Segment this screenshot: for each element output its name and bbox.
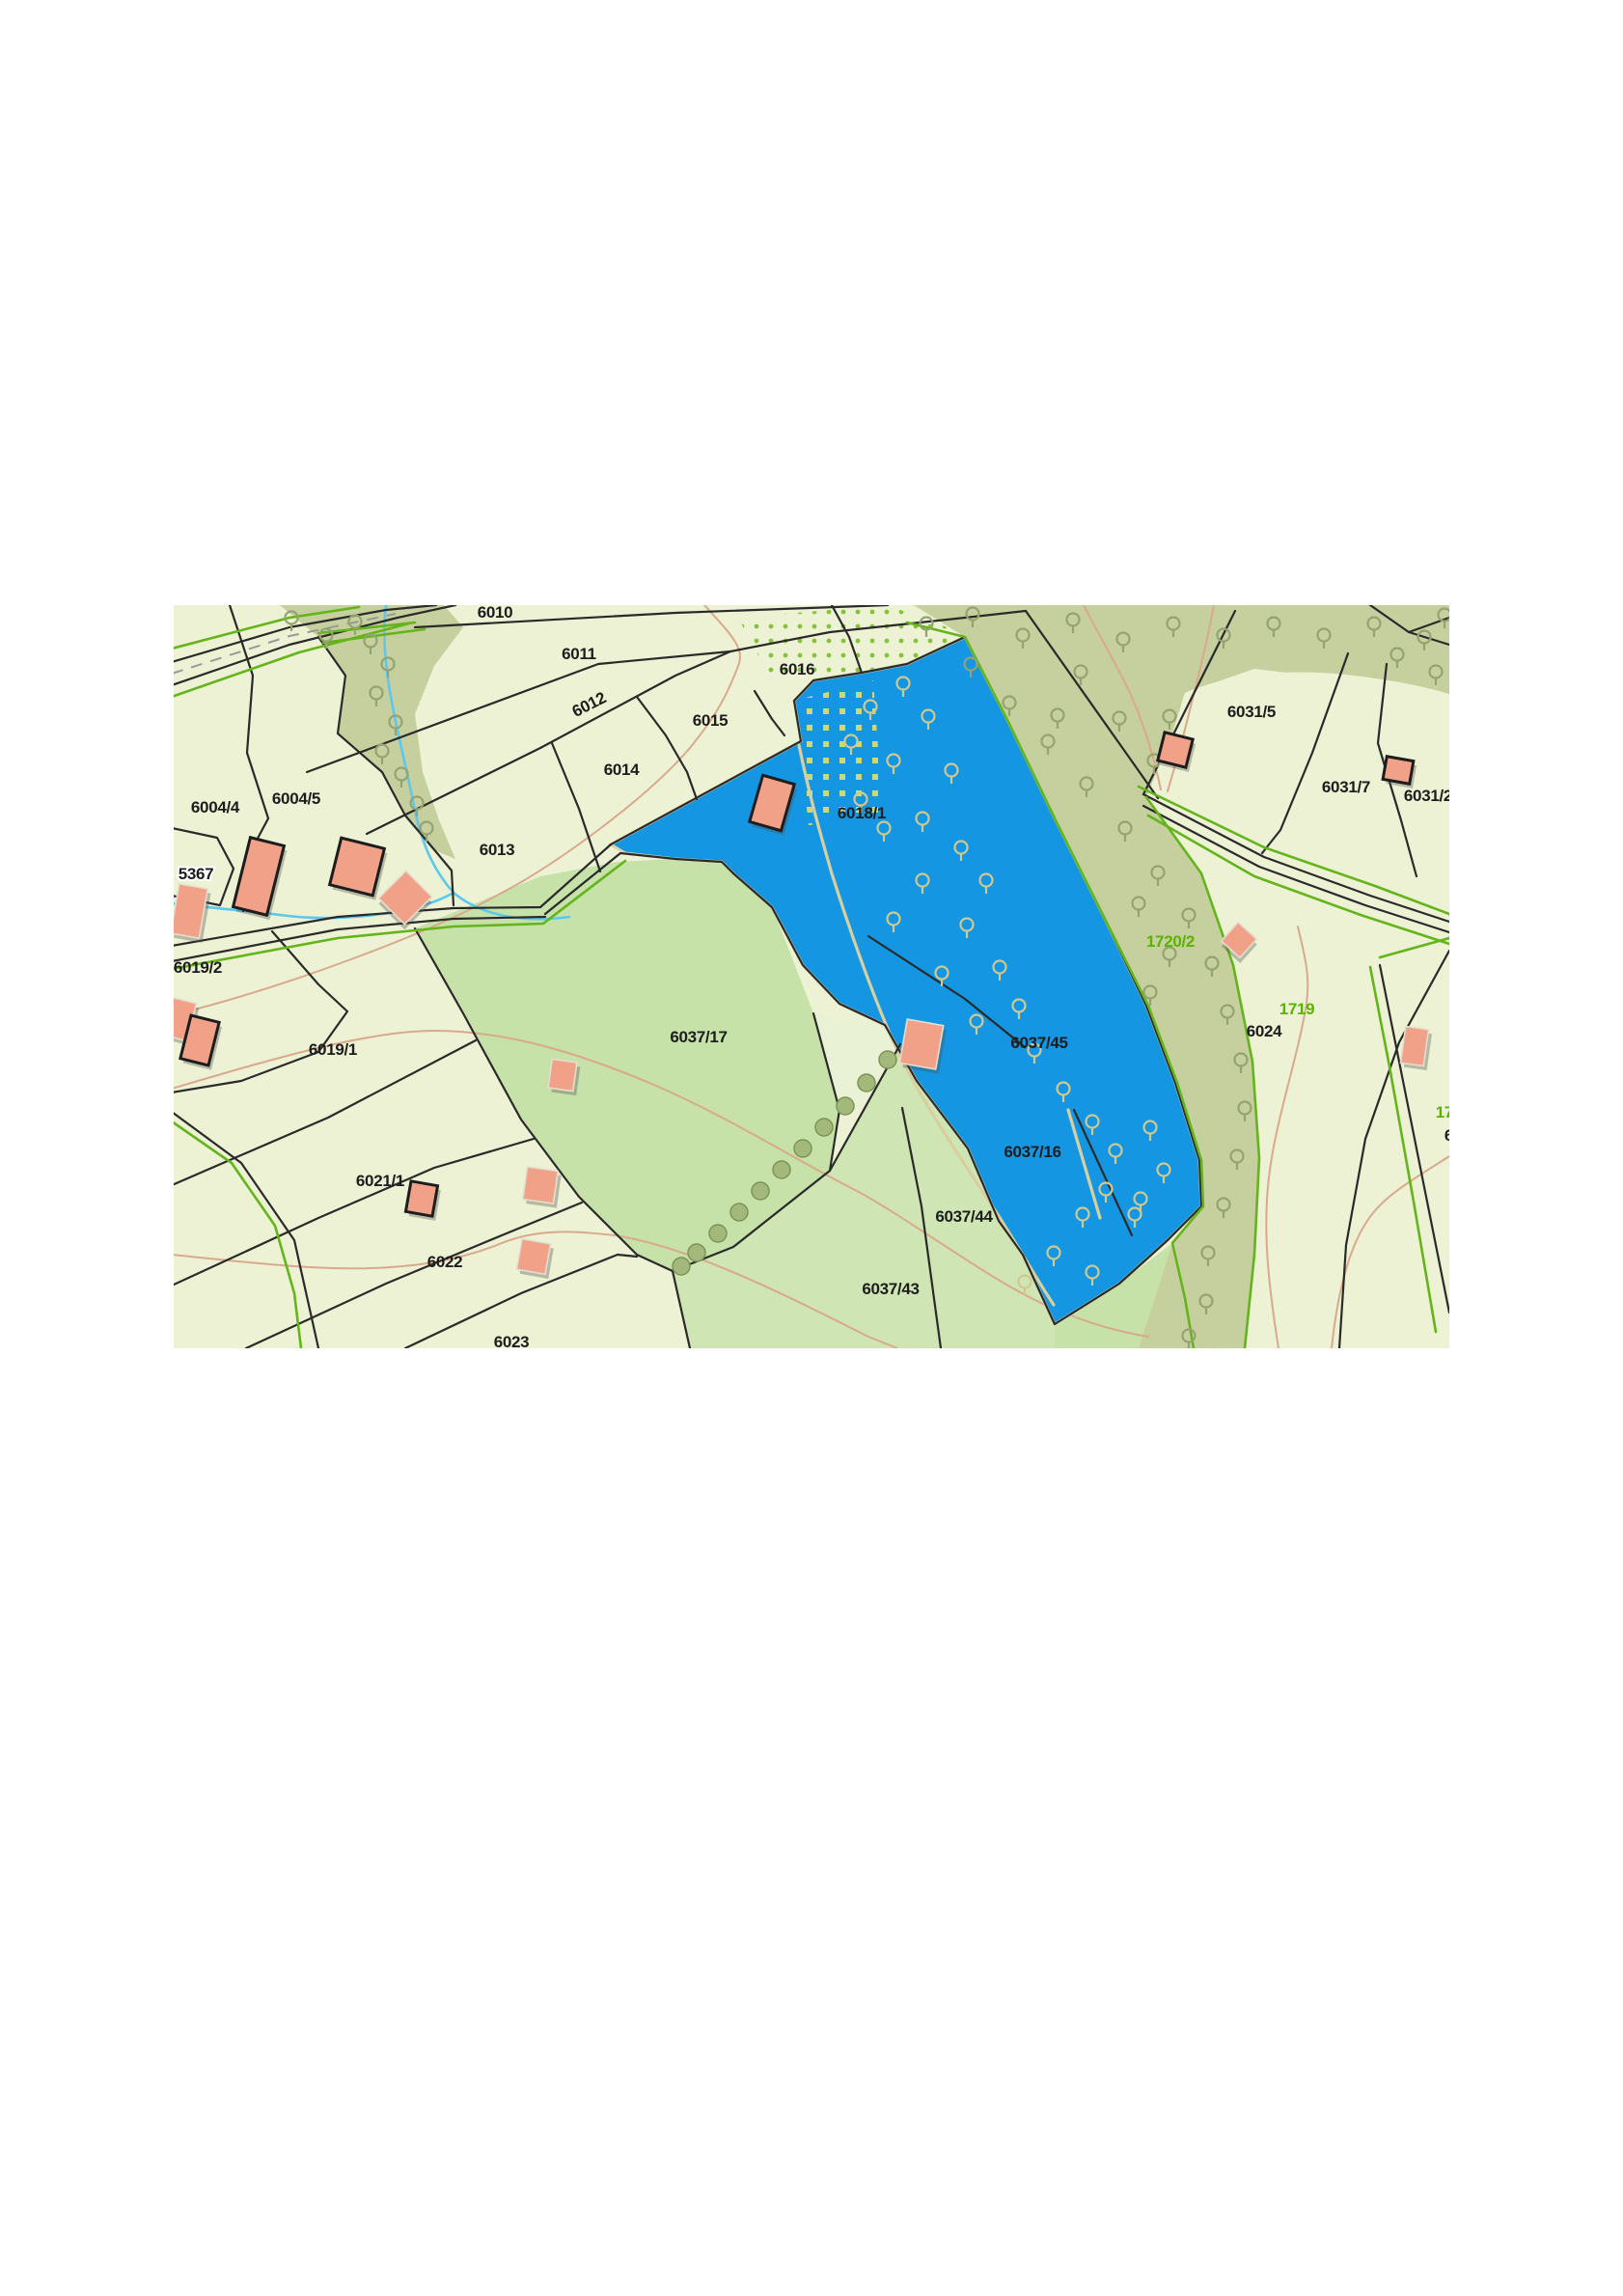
parcel-label: 6019/2 [174,958,222,977]
building [522,1167,562,1208]
building [405,1181,442,1221]
tree-row-icon [794,1140,811,1157]
parcel-label: 6019/1 [309,1040,357,1059]
building [547,1059,580,1095]
cadastral-map[interactable]: 60106011601260146015601660136004/46004/5… [0,0,1623,2296]
building [899,1019,948,1074]
parcel-label: 6037/45 [1010,1034,1067,1052]
tree-row-icon [773,1161,790,1178]
tree-row-icon [858,1074,875,1092]
parcel-label: 6031/2 [1404,787,1452,805]
tree-row-icon [752,1182,769,1200]
page-background: 60106011601260146015601660136004/46004/5… [0,0,1623,2296]
tree-row-icon [709,1225,727,1242]
tree-row-icon [879,1051,896,1068]
tree-row-icon [673,1258,690,1275]
parcel-label: 6013 [480,841,515,859]
parcel-label: 6014 [604,761,640,779]
building [1400,1027,1433,1070]
parcel-label: 6021/1 [356,1172,404,1190]
parcel-label: 6004/5 [272,789,320,808]
tree-row-icon [815,1119,833,1136]
parcel-label: 6031/7 [1322,778,1370,796]
parcel-label: 6037/16 [1004,1143,1060,1161]
parcel-label: 6037/43 [862,1280,919,1298]
parcel-label: 1720/2 [1146,932,1195,951]
tree-row-icon [688,1244,705,1261]
parcel-label: 6016 [780,660,815,678]
parcel-label: 6022 [427,1253,463,1271]
parcel-label: 6024 [1247,1022,1282,1040]
building [1382,757,1417,788]
parcel-label: 5367 [179,865,214,883]
building [516,1239,555,1279]
parcel-label: 6018/1 [838,804,886,822]
parcel-label: 1719 [1279,1000,1315,1018]
map-layers: 60106011601260146015601660136004/46004/5… [162,603,1494,1351]
parcel-label: 6004/4 [191,798,240,816]
parcel-label: 6037/44 [935,1207,993,1226]
parcel-label: 6037/17 [670,1028,727,1046]
tree-row-icon [730,1203,748,1221]
parcel-label: 6010 [478,603,513,622]
tree-row-icon [837,1097,854,1115]
parcel-label: 6015 [693,711,729,730]
parcel-label: 6031/5 [1227,703,1276,721]
parcel-label: 6011 [562,645,596,663]
